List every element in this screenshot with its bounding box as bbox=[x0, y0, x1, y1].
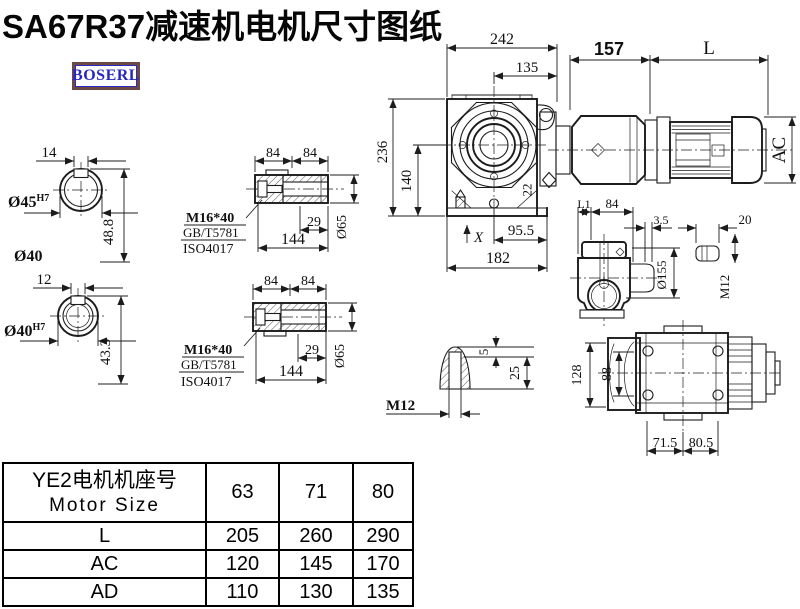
cell: 110 bbox=[206, 578, 279, 606]
label-std-gb: GB/T5781 bbox=[183, 225, 239, 240]
header-cn: YE2电机机座号 bbox=[4, 468, 205, 494]
dim-keyway-width-14: 14 bbox=[42, 145, 58, 161]
dim-157: 157 bbox=[594, 39, 624, 59]
dim-84-a: 84 bbox=[264, 274, 278, 289]
table-header-row: YE2电机机座号 Motor Size 63 71 80 bbox=[3, 463, 413, 522]
bolt-head bbox=[258, 181, 267, 197]
cell: 205 bbox=[206, 522, 279, 550]
table-row-AD: AD 110 130 135 bbox=[3, 578, 413, 606]
size-71: 71 bbox=[279, 463, 353, 522]
stud bbox=[696, 246, 719, 261]
side-body bbox=[578, 258, 630, 310]
view-plug-detail: 5 25 M12 bbox=[386, 336, 534, 418]
dim-84-b: 84 bbox=[303, 146, 317, 161]
dim-84-a: 84 bbox=[266, 146, 280, 161]
label-thread-m16x40: M16*40 bbox=[186, 211, 234, 226]
dim-140: 140 bbox=[399, 170, 415, 193]
bolt-diamond bbox=[543, 173, 557, 188]
ear-hole bbox=[540, 109, 553, 122]
dim-84: 84 bbox=[606, 196, 620, 211]
dim-135: 135 bbox=[516, 60, 539, 76]
drawing-sheet: SA67R37减速机电机尺寸图纸 BOSERL 14 bbox=[0, 0, 800, 609]
dim-L: L bbox=[703, 38, 715, 59]
motor-size-table: YE2电机机座号 Motor Size 63 71 80 L 205 260 2… bbox=[2, 462, 414, 607]
dim-144: 144 bbox=[279, 363, 303, 380]
thread-bore bbox=[449, 352, 461, 389]
cell: 290 bbox=[353, 522, 413, 550]
dim-95-5: 95.5 bbox=[508, 223, 534, 239]
row-label: AD bbox=[3, 578, 206, 606]
size-63: 63 bbox=[206, 463, 279, 522]
dim-L1: L1 bbox=[577, 197, 590, 211]
dim-242: 242 bbox=[490, 31, 514, 48]
label-thread-m16x40: M16*40 bbox=[184, 343, 232, 358]
dim-depth-48-8: 48.8 bbox=[101, 219, 117, 245]
label-std-iso: ISO4017 bbox=[181, 375, 232, 390]
dim-bore-40h7: Ø40H7 bbox=[4, 322, 45, 340]
label-stud-m12: M12 bbox=[717, 275, 732, 300]
header-motor-size: YE2电机机座号 Motor Size bbox=[3, 463, 206, 522]
row-label: AC bbox=[3, 550, 206, 578]
view-side-gearbox: L1 84 3.5 Ø155 20 M12 bbox=[570, 196, 752, 326]
table-row-AC: AC 120 145 170 bbox=[3, 550, 413, 578]
dim-bore-45h7: Ø45H7 bbox=[8, 193, 49, 211]
size-80: 80 bbox=[353, 463, 413, 522]
dim-29: 29 bbox=[305, 343, 319, 358]
view-bushing-bottom: 84 84 M16*40 GB/T5781 ISO4017 29 144 Ø65 bbox=[179, 274, 357, 390]
dim-20: 20 bbox=[739, 212, 752, 227]
bolt-shank bbox=[267, 186, 282, 193]
dim-depth-43-3: 43.3 bbox=[98, 339, 114, 365]
dim-22: 22 bbox=[520, 184, 535, 197]
cell: 120 bbox=[206, 550, 279, 578]
label-plug-m12: M12 bbox=[386, 398, 415, 414]
dim-128: 128 bbox=[570, 365, 585, 386]
keyway-slot bbox=[71, 296, 85, 305]
cell: 130 bbox=[279, 578, 353, 606]
dim-84-b: 84 bbox=[301, 274, 315, 289]
view-hollow-shaft-top: 14 Ø45H7 48.8 Ø40 bbox=[8, 145, 138, 265]
side-foot bbox=[580, 310, 624, 318]
dim-dia-155: Ø155 bbox=[654, 261, 669, 290]
dim-keyway-width-12: 12 bbox=[37, 272, 52, 288]
view-front-gearbox-motor: 22 242 bbox=[375, 31, 796, 272]
dim-5: 5 bbox=[476, 349, 491, 356]
dim-80-5: 80.5 bbox=[689, 436, 714, 451]
view-bushing-top: 84 84 M16*40 GB/T5781 ISO4017 29 144 Ø65 bbox=[181, 146, 359, 257]
label-std-gb: GB/T5781 bbox=[181, 357, 237, 372]
view-hollow-shaft-bottom: 12 Ø40H7 43.3 bbox=[4, 272, 136, 384]
header-en: Motor Size bbox=[4, 494, 205, 518]
view-bottom-gearbox: 128 88 71.5 80.5 bbox=[570, 320, 782, 456]
cell: 145 bbox=[279, 550, 353, 578]
label-datum-x: X bbox=[473, 230, 484, 246]
dim-dia-65: Ø65 bbox=[333, 344, 348, 368]
dim-dia-65: Ø65 bbox=[335, 215, 350, 239]
dim-144: 144 bbox=[281, 231, 305, 248]
label-std-iso: ISO4017 bbox=[183, 242, 234, 257]
row-label: L bbox=[3, 522, 206, 550]
keyway-slot bbox=[74, 169, 88, 178]
dim-25: 25 bbox=[508, 366, 523, 380]
cell: 260 bbox=[279, 522, 353, 550]
dim-88: 88 bbox=[600, 367, 615, 381]
dim-182: 182 bbox=[486, 250, 510, 267]
dim-29: 29 bbox=[307, 215, 321, 230]
dim-236: 236 bbox=[375, 140, 391, 163]
drain-plug bbox=[456, 197, 465, 208]
dim-AC: AC bbox=[769, 137, 790, 163]
dim-3-5: 3.5 bbox=[654, 213, 669, 227]
cell: 135 bbox=[353, 578, 413, 606]
bolt-head bbox=[256, 309, 265, 325]
dim-71-5: 71.5 bbox=[653, 436, 678, 451]
cell: 170 bbox=[353, 550, 413, 578]
bolt-shank bbox=[265, 314, 280, 321]
label-outer-dia-40: Ø40 bbox=[14, 248, 42, 265]
table-row-L: L 205 260 290 bbox=[3, 522, 413, 550]
